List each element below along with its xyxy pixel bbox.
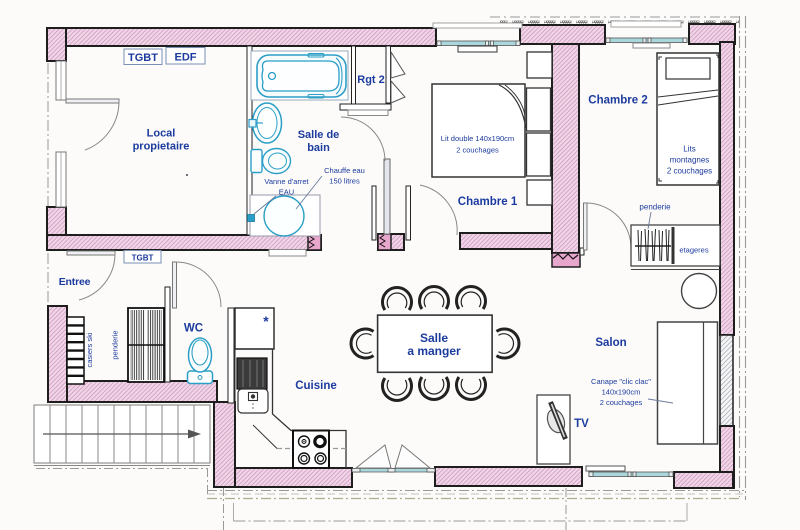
svg-text:2 couchages: 2 couchages xyxy=(600,398,643,407)
svg-text:Chauffe eau: Chauffe eau xyxy=(324,166,365,175)
svg-text:Chambre 2: Chambre 2 xyxy=(588,95,647,107)
svg-text:etageres: etageres xyxy=(679,246,708,255)
svg-text:Local: Local xyxy=(147,128,176,140)
svg-text:Salon: Salon xyxy=(595,337,626,349)
svg-text:montagnes: montagnes xyxy=(670,156,710,165)
svg-text:2 couchages: 2 couchages xyxy=(667,167,712,176)
svg-text:bain: bain xyxy=(307,142,330,154)
svg-text:Lits: Lits xyxy=(683,145,695,154)
svg-text:Vanne d'arret: Vanne d'arret xyxy=(264,177,309,186)
svg-text:EDF: EDF xyxy=(175,52,197,64)
svg-text:propietaire: propietaire xyxy=(133,141,190,153)
svg-text:Rgt 2: Rgt 2 xyxy=(357,74,385,86)
svg-text:Entree: Entree xyxy=(59,276,91,288)
svg-text:Cuisine: Cuisine xyxy=(295,380,337,392)
svg-text:Salle de: Salle de xyxy=(298,129,340,141)
svg-text:a manger: a manger xyxy=(407,344,461,358)
svg-text:EAU: EAU xyxy=(279,188,294,197)
svg-text:WC: WC xyxy=(184,323,203,335)
svg-text:2 couchages: 2 couchages xyxy=(456,146,499,155)
svg-text:Chambre 1: Chambre 1 xyxy=(458,196,518,208)
svg-text:150 litres: 150 litres xyxy=(329,177,360,186)
svg-text:penderie: penderie xyxy=(111,330,120,359)
svg-text:casiers ski: casiers ski xyxy=(85,332,94,367)
svg-text:140x190cm: 140x190cm xyxy=(602,388,641,397)
svg-text:TV: TV xyxy=(574,418,589,430)
svg-text:penderie: penderie xyxy=(639,203,671,212)
svg-text:Canape "clic clac": Canape "clic clac" xyxy=(591,377,651,386)
svg-text:Salle: Salle xyxy=(420,331,448,345)
svg-text:TGBT: TGBT xyxy=(128,52,158,64)
svg-text:Lit double 140x190cm: Lit double 140x190cm xyxy=(441,134,514,143)
svg-text:*: * xyxy=(263,313,269,329)
svg-text:TGBT: TGBT xyxy=(132,254,154,263)
